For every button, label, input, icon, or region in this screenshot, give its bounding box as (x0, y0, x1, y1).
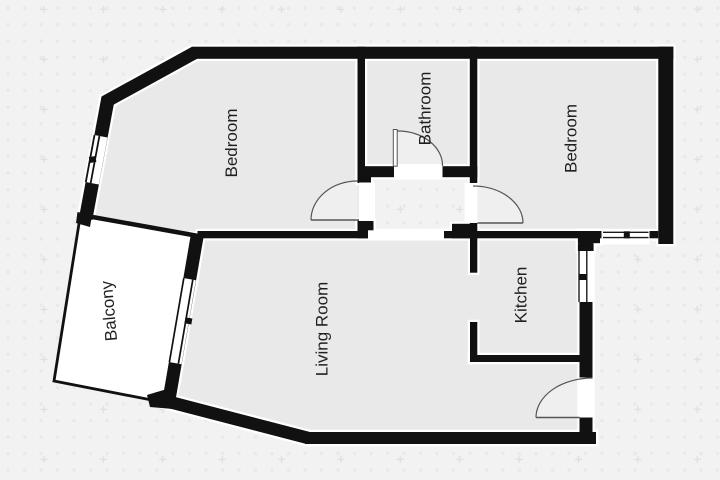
svg-text:Bathroom: Bathroom (416, 72, 435, 146)
svg-text:Bedroom: Bedroom (222, 109, 241, 178)
svg-text:Bedroom: Bedroom (562, 104, 581, 173)
svg-text:Living Room: Living Room (313, 282, 332, 377)
svg-text:Kitchen: Kitchen (512, 267, 531, 324)
